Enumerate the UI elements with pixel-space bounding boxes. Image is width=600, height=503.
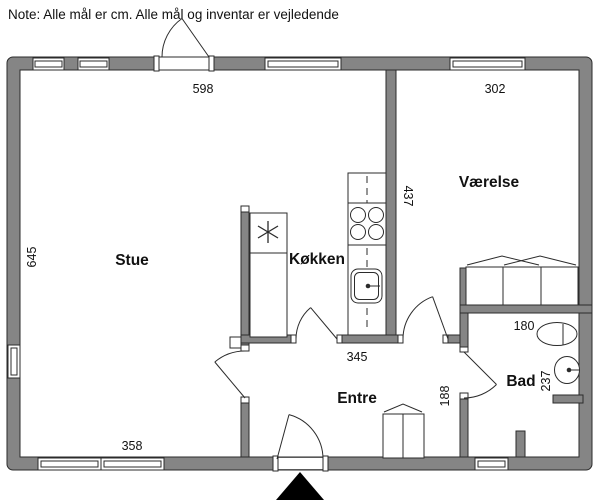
dim-stue-top-width: 598 [193, 82, 214, 96]
room-label-vaerelse: Værelse [459, 174, 520, 191]
dim-vaerelse-height: 437 [401, 186, 415, 207]
wall-washbasin-stub [553, 395, 583, 403]
jamb [291, 335, 296, 343]
window-bottom-stue [38, 458, 164, 470]
window-top-2 [78, 58, 109, 70]
wall-stue-kitchen [241, 210, 249, 345]
note-text: Note: Alle mål er cm. Alle mål og invent… [8, 7, 339, 22]
room-label-bad: Bad [506, 373, 535, 390]
wall-kitchen-vaerelse [386, 70, 396, 343]
jamb [337, 335, 342, 343]
kitchen-counter [348, 173, 386, 335]
window-top-3 [265, 58, 341, 70]
dim-entre-to-bad: 188 [438, 386, 452, 407]
kitchen-sink-icon [351, 269, 382, 303]
jamb [241, 345, 249, 351]
window-left [8, 345, 20, 378]
dim-bad-width: 180 [514, 319, 535, 333]
dim-left-height: 645 [25, 247, 39, 268]
dim-stue-bottom-window: 358 [122, 439, 143, 453]
window-top-1 [33, 58, 64, 70]
wall-stue-entre-lower [241, 403, 249, 457]
washbasin-icon [555, 357, 580, 384]
wall-kitchen-south-right [342, 335, 398, 343]
wall-entre-vaerelse-stub [448, 335, 460, 343]
jamb [230, 337, 241, 348]
floor-plan-drawing: Note: Alle mål er cm. Alle mål og invent… [0, 0, 600, 503]
stove-icon [348, 203, 386, 245]
room-label-stue: Stue [115, 252, 149, 269]
room-label-entre: Entre [337, 390, 377, 407]
jamb [398, 335, 403, 343]
wall-bad-west-lower [460, 399, 468, 457]
dim-kitchen-bottom: 345 [347, 350, 368, 364]
wall-vaerelse-bad [460, 305, 592, 313]
wall-shower-stub [516, 431, 525, 457]
refrigerator-icon [250, 213, 287, 337]
floor-plan: Note: Alle mål er cm. Alle mål og invent… [0, 0, 600, 503]
jamb [241, 206, 249, 212]
window-bottom-bad [475, 458, 508, 470]
jamb [460, 347, 468, 352]
dim-vaerelse-top-width: 302 [485, 82, 506, 96]
dim-bad-height: 237 [539, 371, 553, 392]
toilet-icon [537, 323, 577, 346]
window-top-vaerelse [450, 58, 525, 70]
room-label-kokken: Køkken [289, 251, 345, 268]
